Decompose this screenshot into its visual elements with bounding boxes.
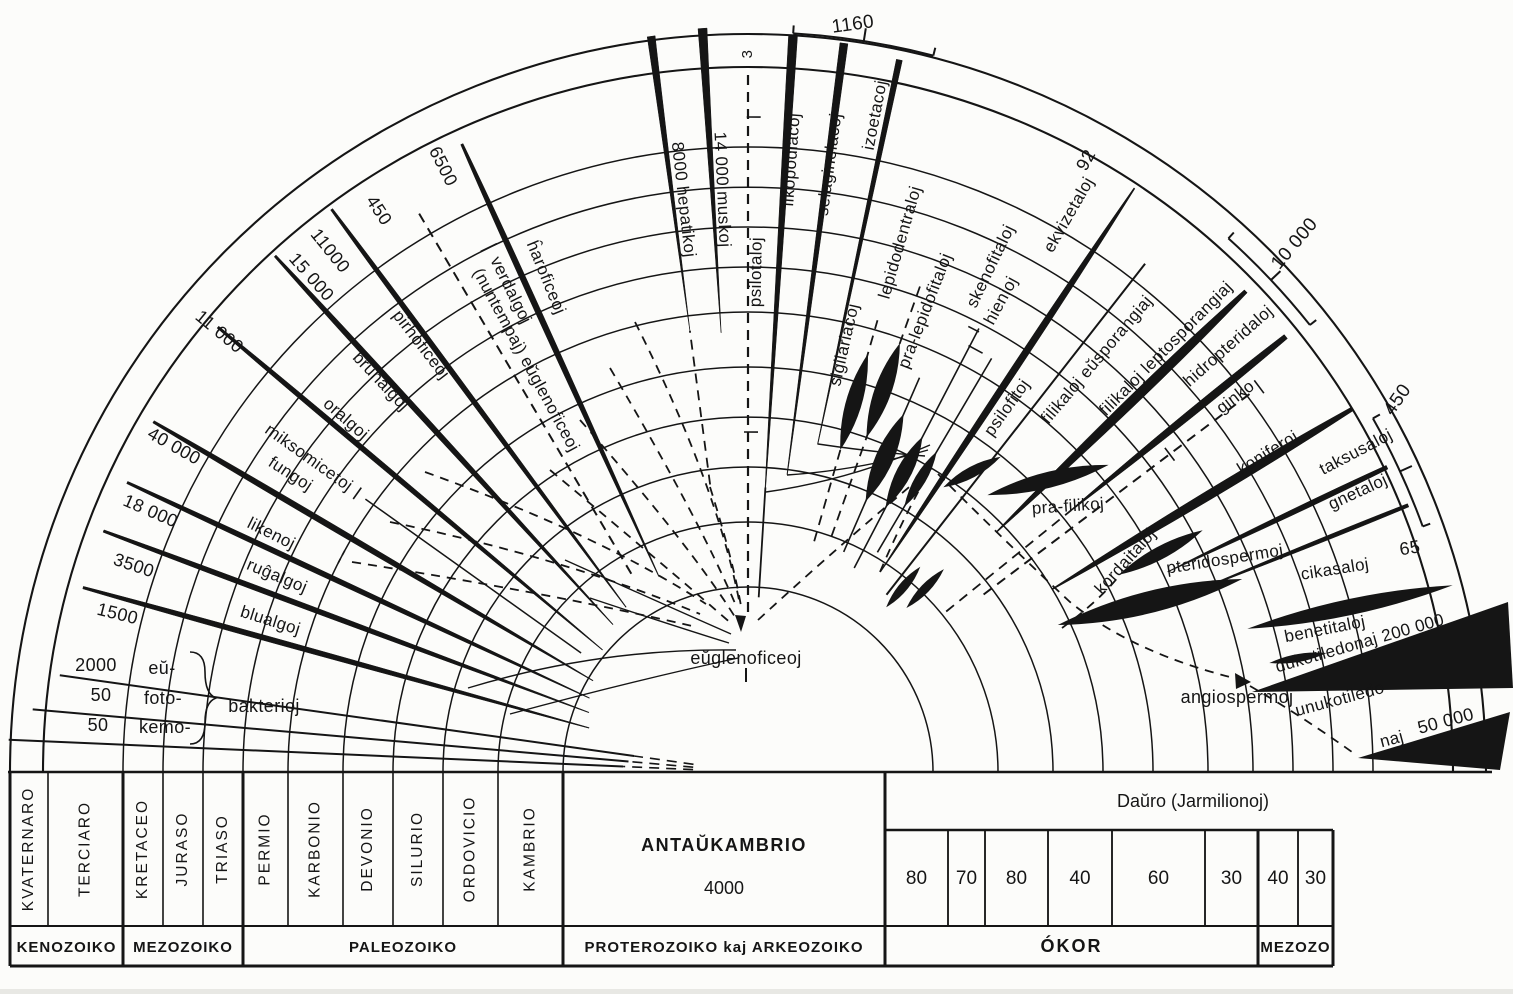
duration-value: 70 bbox=[956, 868, 977, 889]
duration-value: 30 bbox=[1221, 868, 1242, 889]
label-65: 65 bbox=[1398, 536, 1422, 559]
period-kretaceo: KRETACEO bbox=[134, 799, 151, 899]
period-kambrio: KAMBRIO bbox=[522, 806, 539, 891]
period-terciaro: TERCIARO bbox=[77, 801, 94, 897]
evolution-fan-diagram-page: fungojmiksomicetojlikenojruĝalgojblualgo… bbox=[0, 0, 1513, 989]
label-foto: foto- bbox=[144, 688, 182, 708]
period-karbonio: KARBONIO bbox=[307, 800, 324, 898]
precambrian-label: ANTAŬKAMBRIO bbox=[641, 834, 807, 855]
period-devonio: DEVONIO bbox=[359, 806, 376, 891]
period-juraso: JURASO bbox=[174, 812, 191, 887]
bracket-1160-tick bbox=[793, 25, 794, 33]
period-permio: PERMIO bbox=[257, 812, 274, 885]
label-e-glenoficeoj: eŭglenoficeoj bbox=[690, 648, 801, 668]
duration-value: 30 bbox=[1305, 868, 1326, 889]
duration-value: 80 bbox=[1006, 868, 1027, 889]
era-paleozoiko: PALEOZOIKO bbox=[349, 939, 457, 956]
label-psilotaloj: psilotaloj bbox=[746, 237, 766, 307]
duration-value: 60 bbox=[1148, 868, 1169, 889]
duration-value: 80 bbox=[906, 868, 927, 889]
label-angiospermoj: angiospermoj bbox=[1181, 687, 1294, 707]
fan-diagram: fungojmiksomicetojlikenojruĝalgojblualgo… bbox=[0, 0, 1513, 989]
label-50: 50 bbox=[91, 685, 112, 705]
label-50: 50 bbox=[88, 715, 109, 735]
duration-value: 40 bbox=[1267, 868, 1288, 889]
period-triaso: TRIASO bbox=[214, 814, 231, 884]
period-ordovicio: ORDOVICIO bbox=[462, 796, 479, 903]
era-mezozoiko: MEZOZOIKO bbox=[133, 939, 233, 956]
era-mezozo: MEZOZO bbox=[1260, 939, 1330, 956]
duration-header: Daŭro (Jarmilionoj) bbox=[1117, 791, 1269, 811]
period-kvaternaro: KVATERNARO bbox=[20, 787, 37, 912]
label-bakterioj: bakterioj bbox=[228, 696, 300, 716]
precambrian-duration: 4000 bbox=[704, 878, 744, 898]
era-kenozoiko: KENOZOIKO bbox=[17, 939, 117, 956]
label-3: 3 bbox=[739, 50, 756, 59]
label-2000: 2000 bbox=[75, 655, 117, 675]
era-proterozoiko-kaj-arkeozoiko: PROTEROZOIKO kaj ARKEOZOIKO bbox=[585, 939, 864, 956]
period-silurio: SILURIO bbox=[409, 811, 426, 887]
label-e: eŭ- bbox=[148, 658, 175, 678]
era-kor: ÓKOR bbox=[1041, 935, 1103, 956]
duration-value: 40 bbox=[1069, 868, 1090, 889]
label-kemo: kemo- bbox=[139, 717, 191, 737]
